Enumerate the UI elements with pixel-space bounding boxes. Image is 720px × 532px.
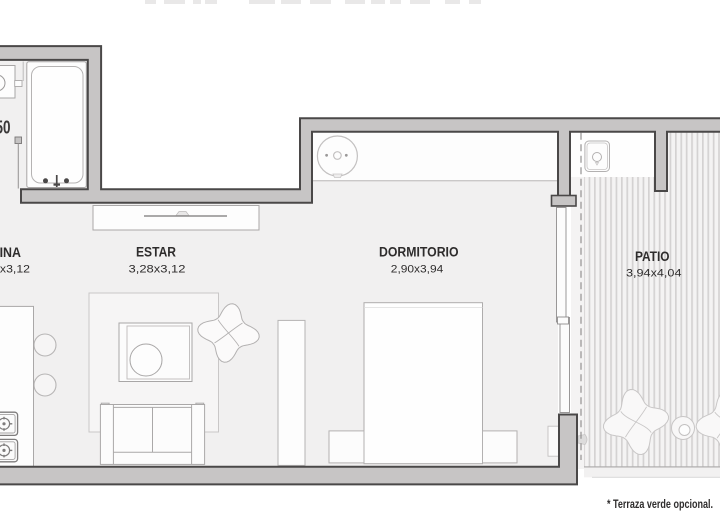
svg-text:2,90x3,94: 2,90x3,94 [391,263,444,275]
svg-text:COCINA: COCINA [0,245,21,260]
svg-text:* Terraza verde opcional.: * Terraza verde opcional. [607,499,713,511]
svg-text:50: 50 [0,118,11,138]
svg-text:ESTAR: ESTAR [136,244,176,259]
svg-text:3,28x3,12: 3,28x3,12 [129,263,186,275]
svg-text:3,94x4,04: 3,94x4,04 [626,268,682,280]
svg-text:1,58x3,12: 1,58x3,12 [0,264,30,276]
svg-text:DORMITORIO: DORMITORIO [379,244,459,259]
svg-text:PATIO: PATIO [635,249,670,264]
